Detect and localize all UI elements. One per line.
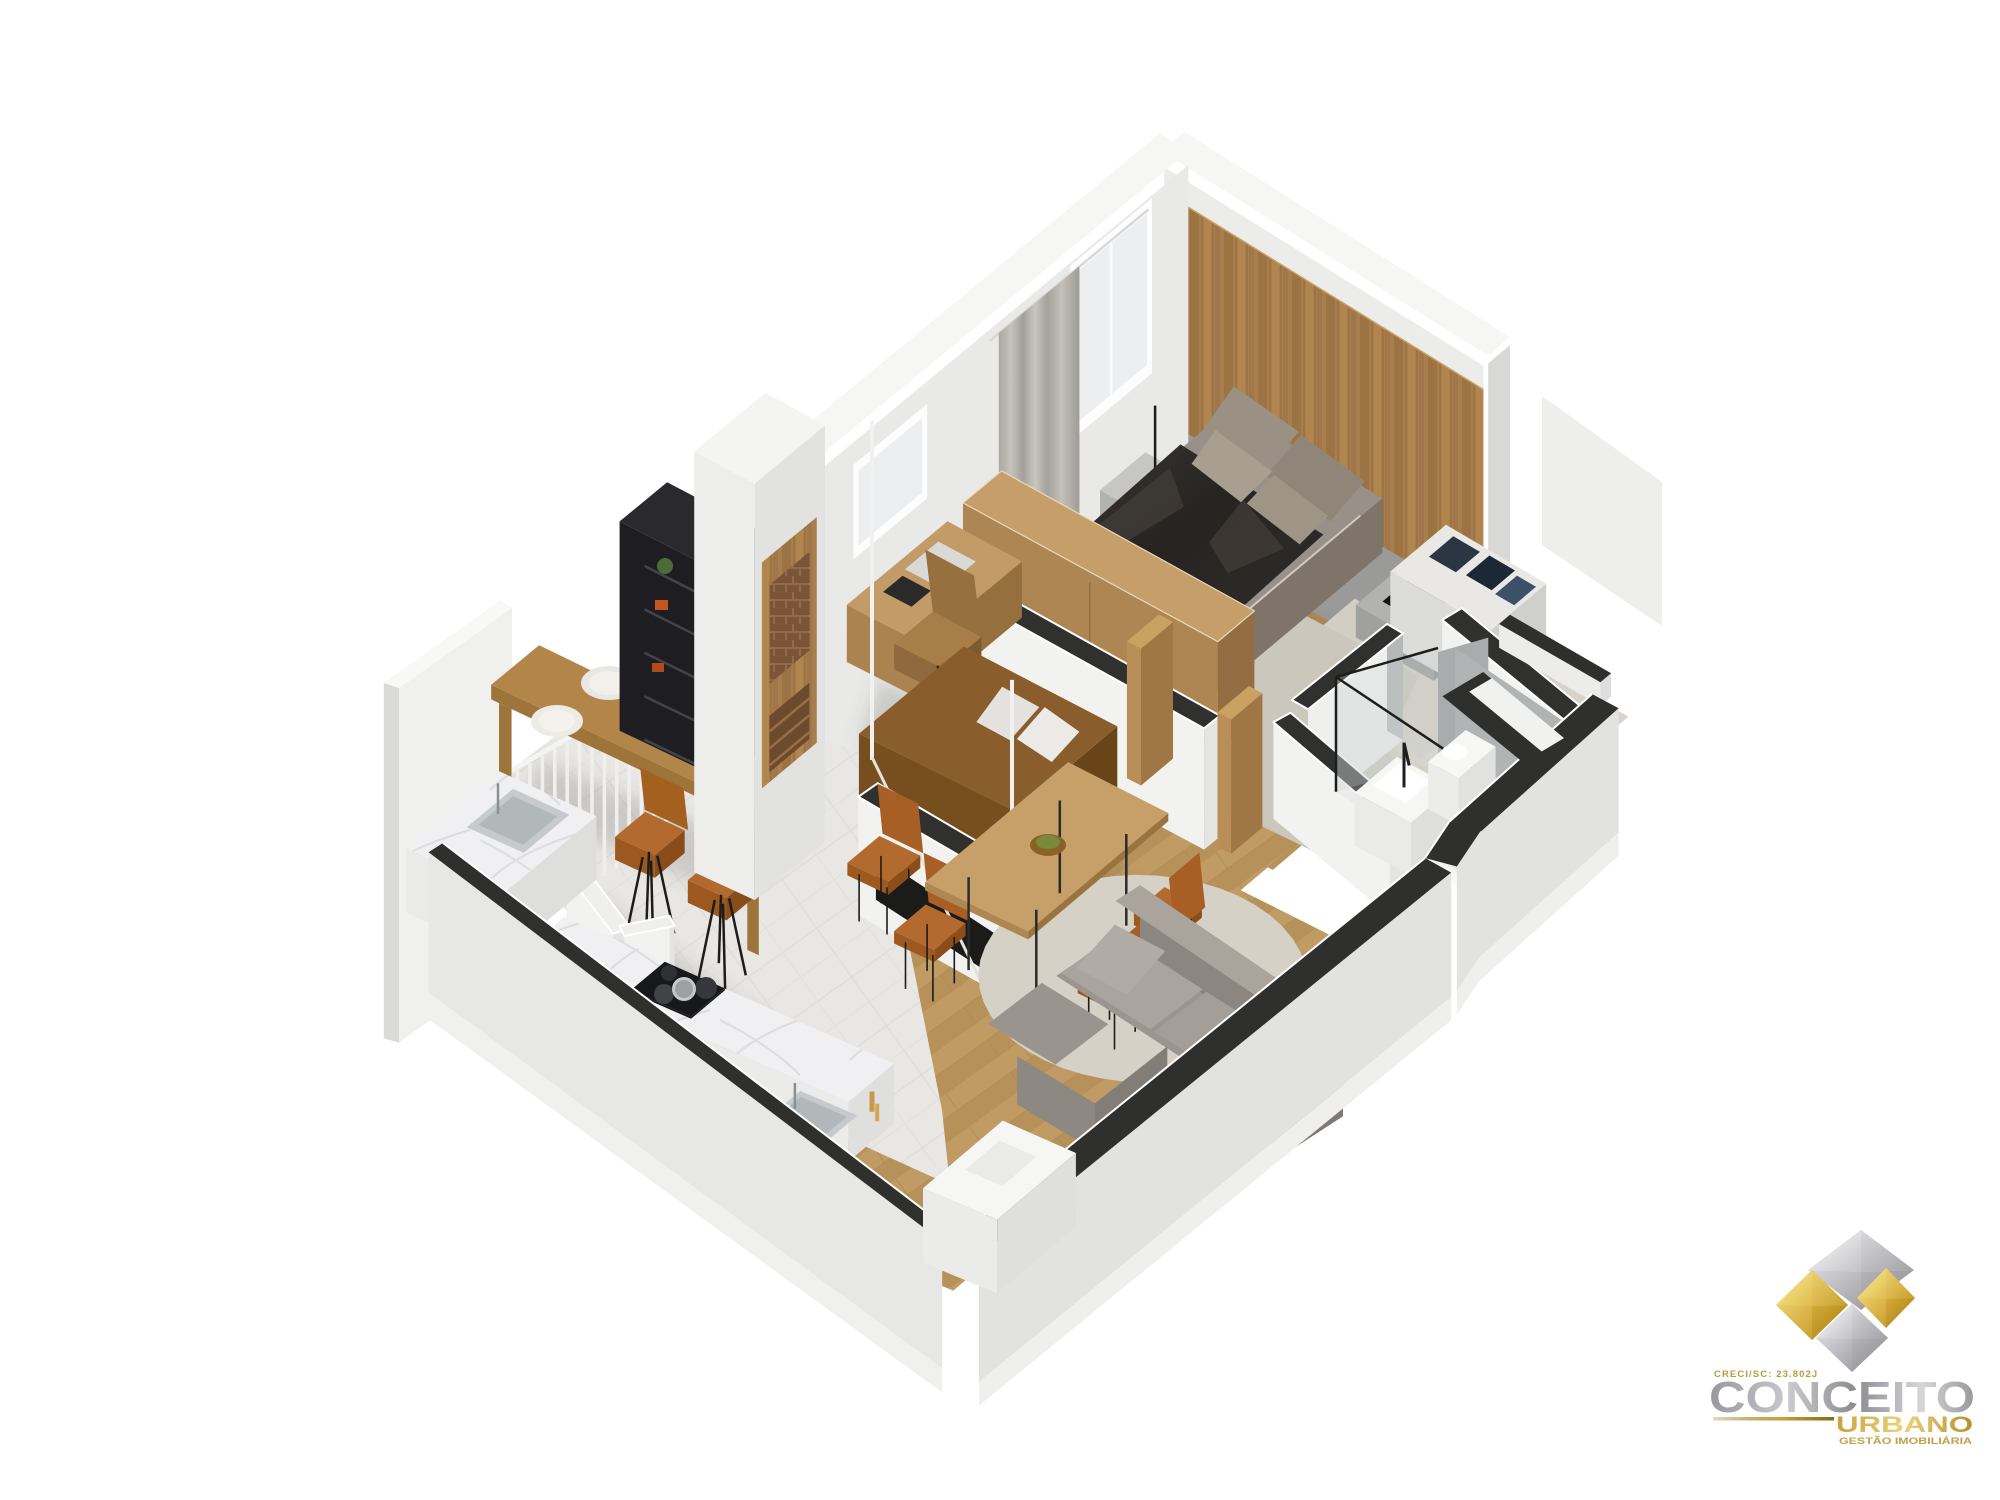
svg-text:URBANO: URBANO [1836,1412,1973,1437]
svg-text:GESTÃO IMOBILIÁRIA: GESTÃO IMOBILIÁRIA [1839,1436,1972,1447]
